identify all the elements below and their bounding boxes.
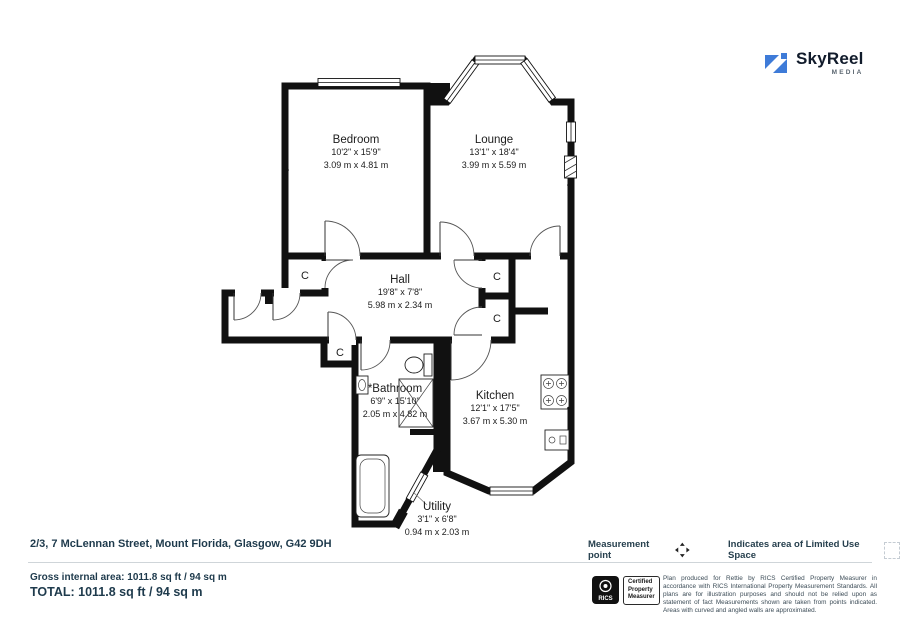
svg-text:RICS: RICS <box>598 596 612 602</box>
room-label-hall: Hall 19'8" x 7'8" 5.98 m x 2.34 m <box>368 274 433 311</box>
measurement-tick <box>286 169 289 172</box>
limited-use-swatch <box>884 542 900 559</box>
room-label-lounge: Lounge 13'1" x 18'4" 3.99 m x 5.59 m <box>462 134 527 171</box>
total-area-text: TOTAL: 1011.8 sq ft / 94 sq m <box>30 585 203 599</box>
closet-label: C <box>336 347 344 359</box>
measurement-tick <box>355 87 358 90</box>
measurement-tick <box>567 407 570 410</box>
closet-label: C <box>493 271 501 283</box>
window-kitchen <box>490 487 533 495</box>
logo-brand-text: SkyReel <box>796 50 864 68</box>
measurement-point-icon <box>675 542 690 558</box>
plan-disclaimer: Plan produced for Rettie by RICS Certifi… <box>663 575 877 615</box>
window-lounge-right <box>567 122 576 142</box>
kitchen-sink <box>545 430 569 450</box>
room-label-bedroom: Bedroom 10'2" x 15'9" 3.09 m x 4.81 m <box>324 134 389 171</box>
closet-label: C <box>493 313 501 325</box>
vent-hatch <box>565 156 577 178</box>
footer-divider <box>28 562 872 563</box>
window-bay-top <box>475 56 525 64</box>
skyreel-logo-icon <box>762 50 790 78</box>
measurement-tick <box>567 184 570 187</box>
room-label-bathroom: *Bathroom 6'9" x 15'10" 2.05 m x 4.82 m <box>363 383 428 420</box>
rics-logo: RICS <box>592 576 619 604</box>
hob <box>541 375 569 409</box>
rics-certification: RICS Certified Property Measurer <box>592 576 660 605</box>
room-label-kitchen: Kitchen 12'1" x 17'5" 3.67 m x 5.30 m <box>463 390 528 427</box>
gross-area-text: Gross internal area: 1011.8 sq ft / 94 s… <box>30 572 227 583</box>
plan-legend: Measurement point Indicates area of Limi… <box>588 539 900 561</box>
bathtub <box>356 455 389 517</box>
closet-label: C <box>301 270 309 282</box>
property-address: 2/3, 7 McLennan Street, Mount Florida, G… <box>30 538 332 550</box>
window-bedroom <box>318 79 400 87</box>
measurement-point-label: Measurement point <box>588 539 668 561</box>
logo-sub-text: MEDIA <box>832 69 864 77</box>
room-label-utility: Utility 3'1" x 6'8" 0.94 m x 2.03 m <box>405 501 470 538</box>
certified-measurer-box: Certified Property Measurer <box>623 576 660 605</box>
limited-use-label: Indicates area of Limited Use Space <box>728 539 876 561</box>
skyreel-logo: SkyReel MEDIA <box>762 50 878 82</box>
room-bedroom <box>285 86 427 256</box>
wall-vestibule-stub <box>265 291 273 304</box>
